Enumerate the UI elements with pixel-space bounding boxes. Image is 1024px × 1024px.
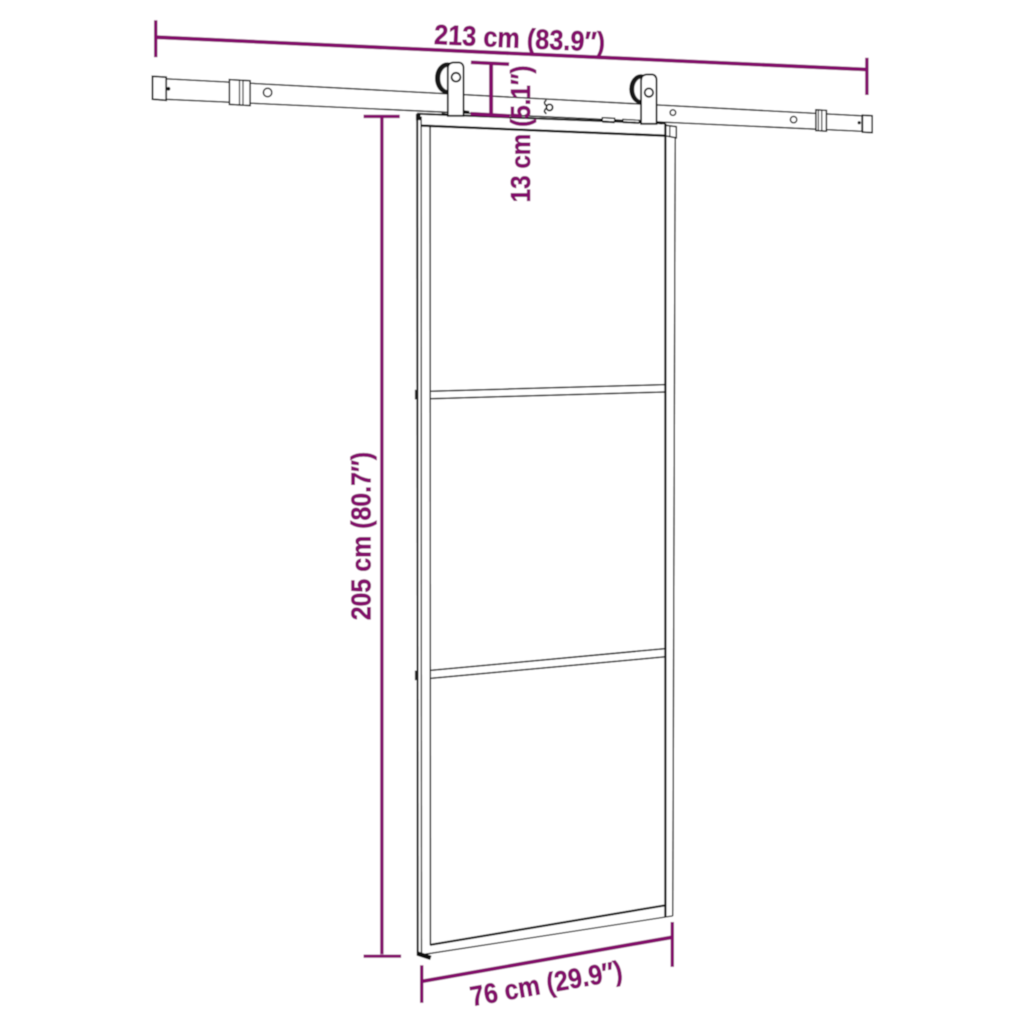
svg-text:13 cm (5.1″): 13 cm (5.1″): [505, 65, 536, 202]
svg-text:205 cm (80.7″): 205 cm (80.7″): [345, 452, 376, 621]
